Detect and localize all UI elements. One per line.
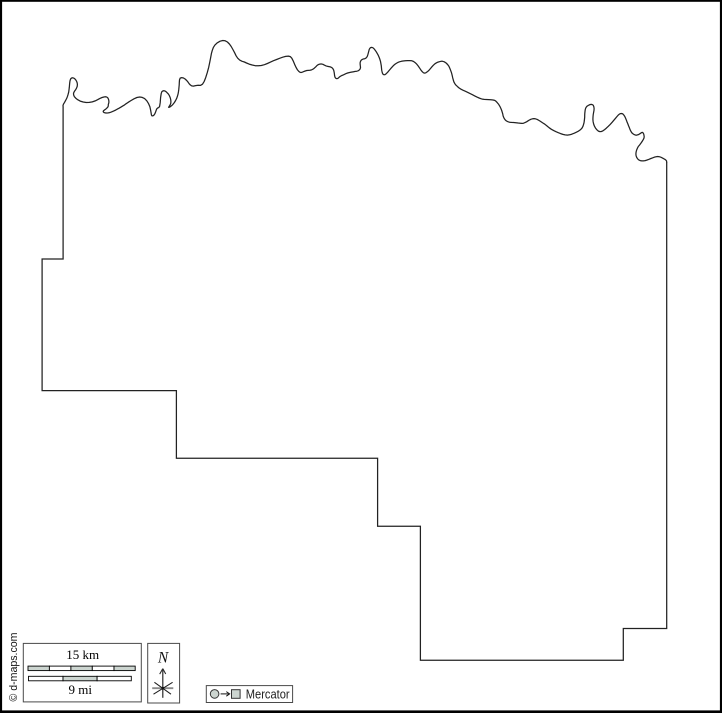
svg-text:Mercator: Mercator	[246, 687, 290, 701]
svg-text:© d-maps.com: © d-maps.com	[8, 633, 20, 702]
svg-text:N: N	[157, 650, 170, 667]
svg-text:9 mi: 9 mi	[69, 682, 93, 697]
svg-text:15 km: 15 km	[66, 647, 99, 662]
